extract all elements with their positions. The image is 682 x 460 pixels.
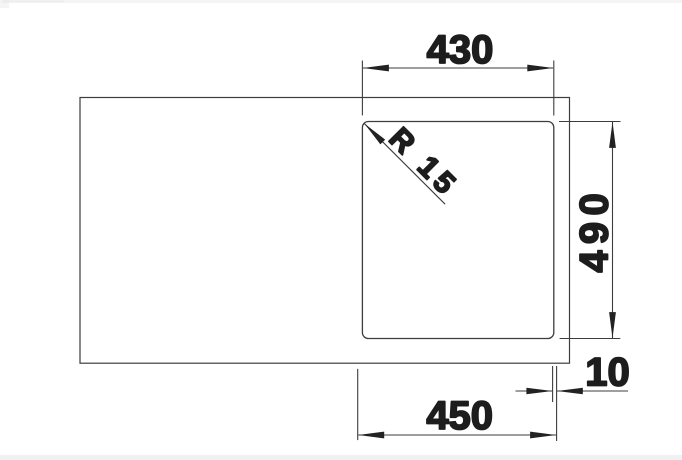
svg-text:490: 490 (573, 187, 617, 273)
svg-text:450: 450 (426, 394, 493, 438)
svg-text:R 15: R 15 (383, 122, 465, 204)
svg-text:10: 10 (585, 351, 630, 395)
svg-text:430: 430 (427, 28, 494, 72)
